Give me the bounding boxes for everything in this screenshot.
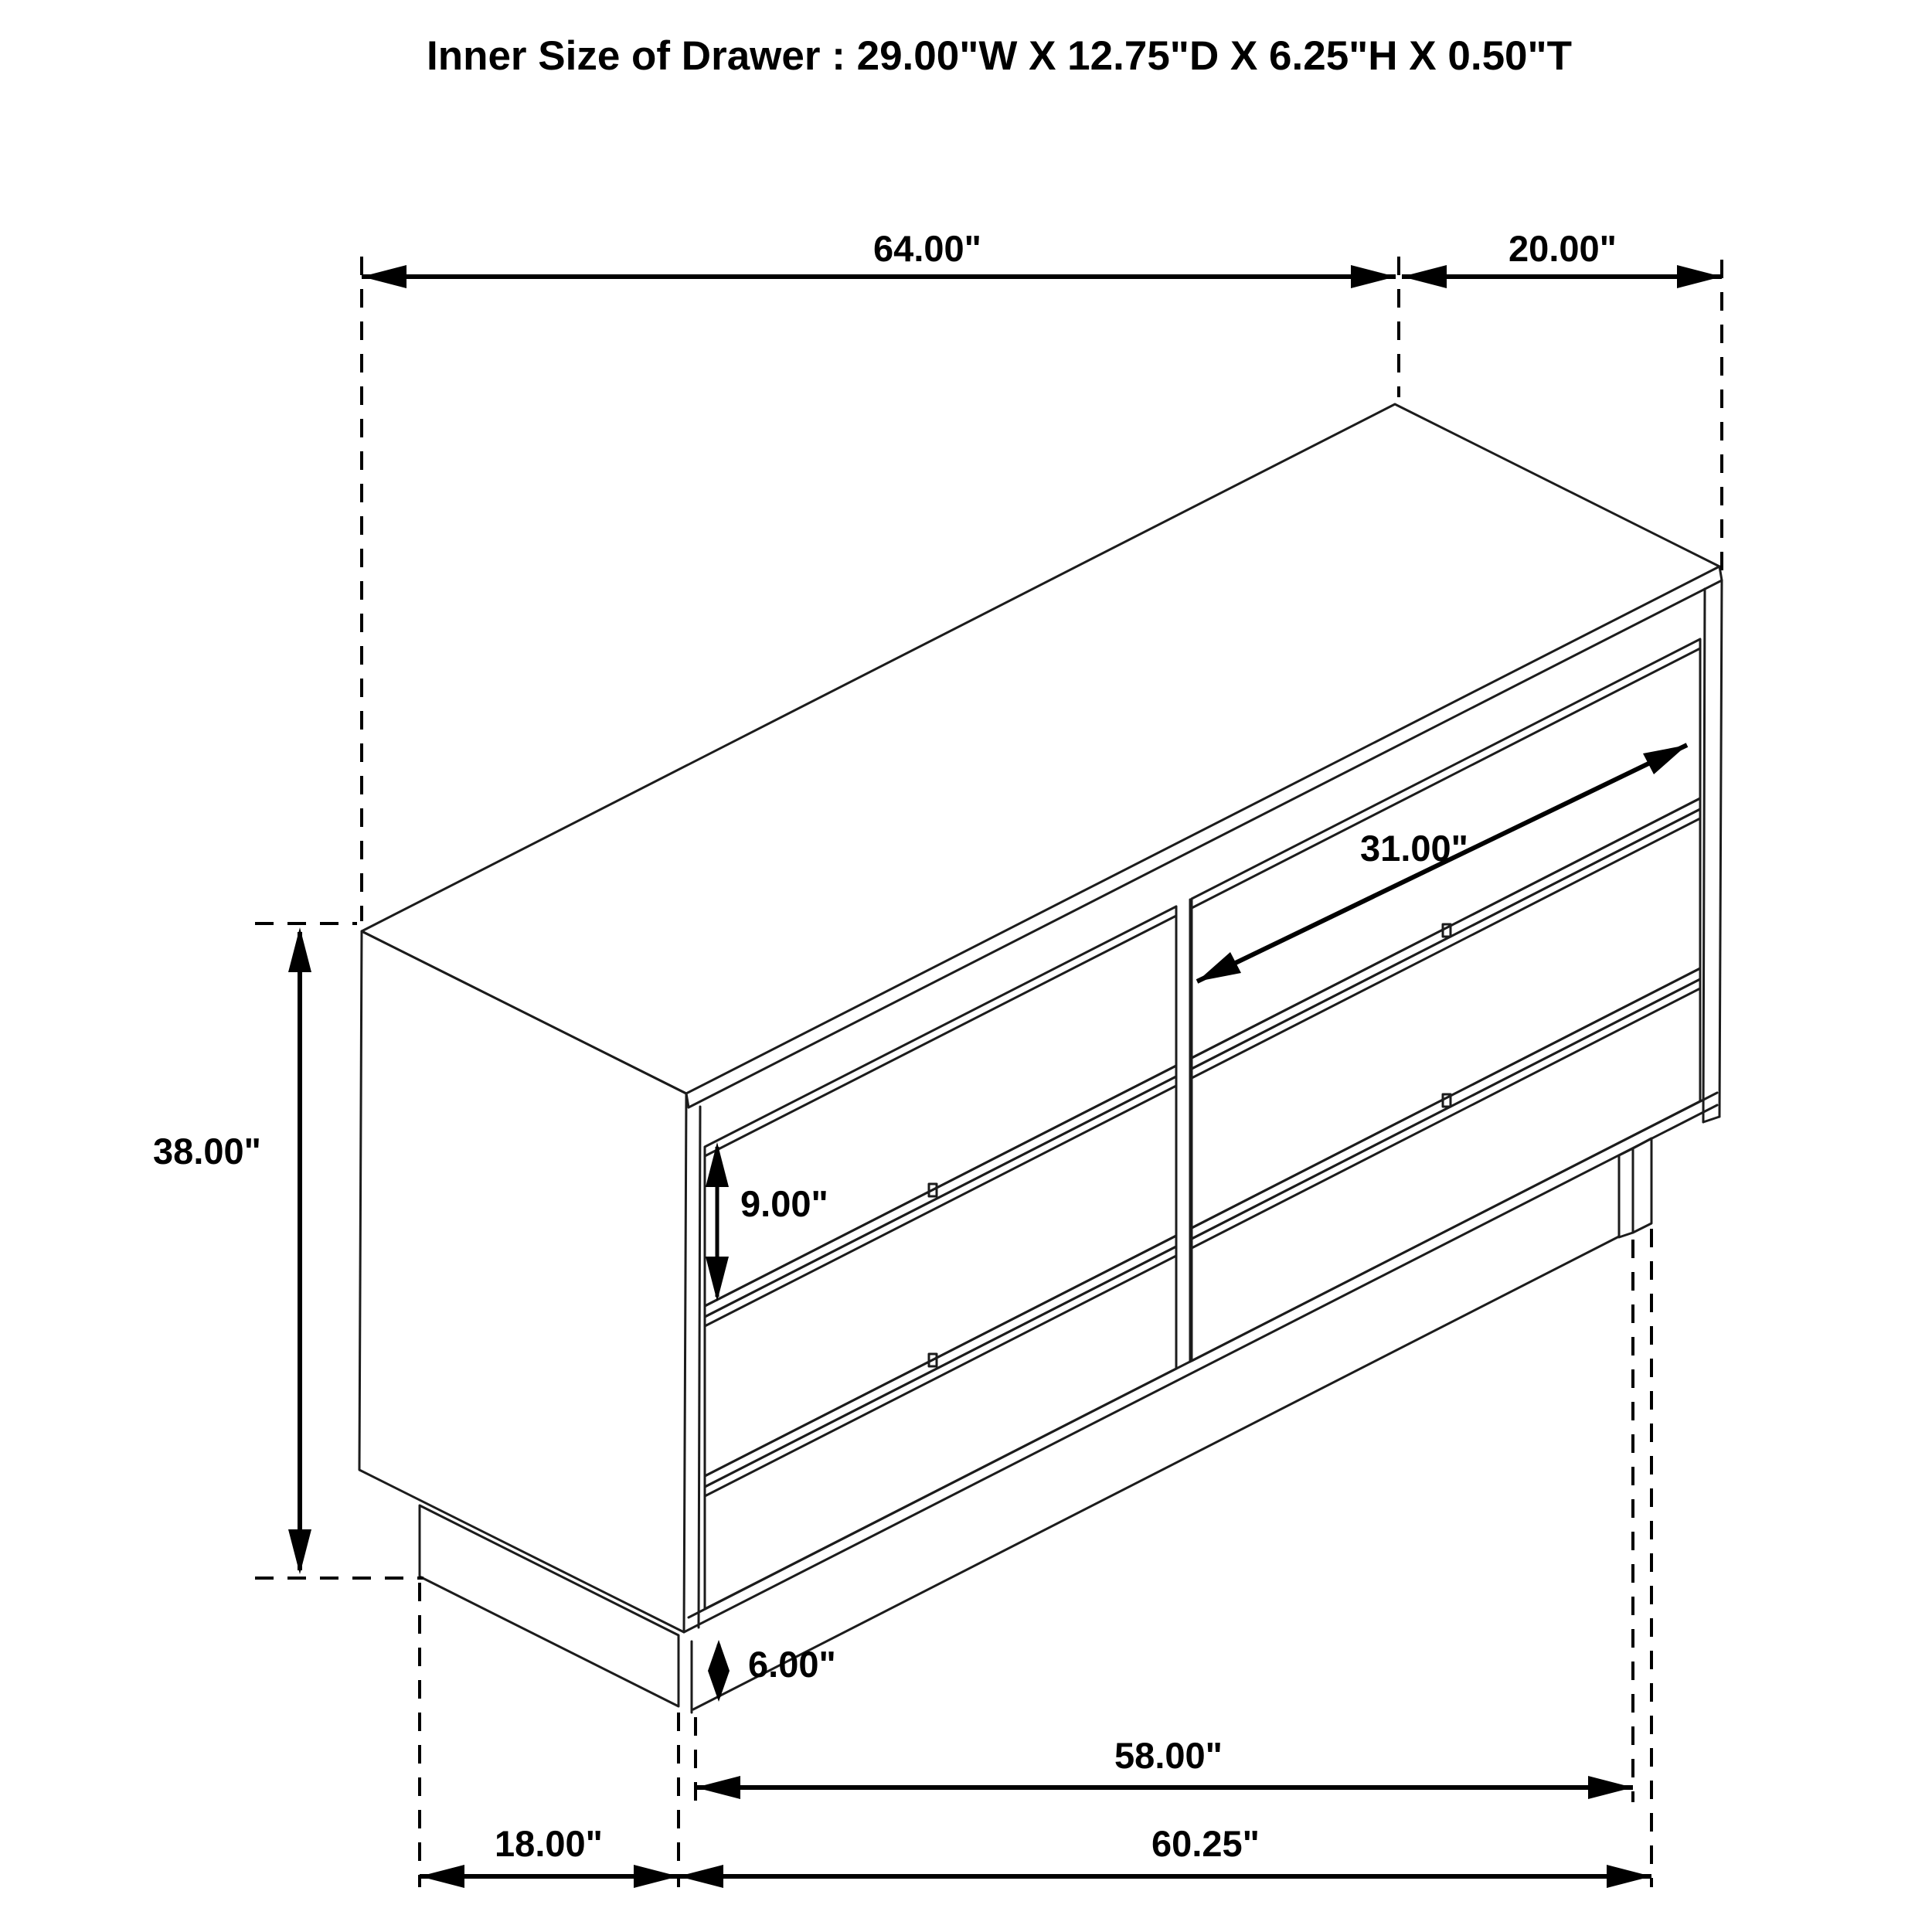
dimension-label-top-depth: 20.00" xyxy=(1509,228,1617,269)
dimension-drawer-height: 9.00" xyxy=(706,1142,828,1301)
dresser-base-plinth xyxy=(420,1236,1619,1713)
dresser-drawing xyxy=(359,404,1722,1713)
dimension-label-base-outer-width: 60.25" xyxy=(1151,1823,1260,1864)
diagram-title: Inner Size of Drawer : 29.00"W X 12.75"D… xyxy=(427,33,1572,79)
dimension-label-base-height: 6.00" xyxy=(748,1644,836,1685)
dimension-label-base-depth: 18.00" xyxy=(495,1823,603,1864)
dimension-overall-width: 64.00" xyxy=(362,228,1396,288)
dimension-label-drawer-width: 31.00" xyxy=(1360,828,1468,869)
drawer-rails-left xyxy=(705,1066,1176,1487)
dresser-top-face xyxy=(362,404,1722,1107)
dimension-top-depth: 20.00" xyxy=(1402,228,1722,288)
dresser-front-frame xyxy=(684,580,1722,1632)
drawer-right-bottom xyxy=(1192,979,1700,1361)
drawer-left-top xyxy=(705,906,1176,1306)
dimension-base-inner-width: 58.00" xyxy=(696,1240,1633,1802)
dimension-label-drawer-height: 9.00" xyxy=(740,1183,828,1224)
drawer-left-bottom xyxy=(705,1247,1176,1609)
dimension-label-overall-width: 64.00" xyxy=(873,228,981,269)
dimension-label-base-inner-width: 58.00" xyxy=(1114,1735,1223,1776)
dresser-right-leg xyxy=(1619,1138,1651,1237)
diagram-page: Inner Size of Drawer : 29.00"W X 12.75"D… xyxy=(0,0,1932,1932)
dresser-dimension-diagram: Inner Size of Drawer : 29.00"W X 12.75"D… xyxy=(0,0,1932,1932)
dresser-left-side-panel xyxy=(359,931,700,1632)
dimension-base-depth: 18.00" xyxy=(420,1583,679,1888)
dimension-label-overall-height: 38.00" xyxy=(153,1131,261,1172)
dimension-overall-height: 38.00" xyxy=(153,923,423,1578)
extension-lines-top xyxy=(362,257,1722,921)
